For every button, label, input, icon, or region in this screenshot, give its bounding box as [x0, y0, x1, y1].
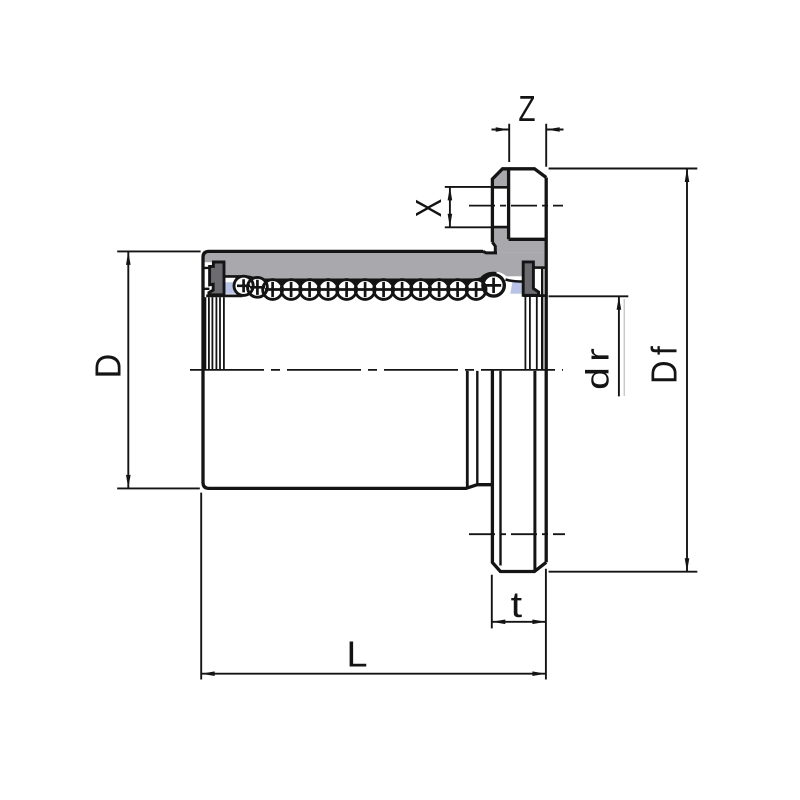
svg-text:L: L	[346, 634, 367, 674]
svg-text:Z: Z	[518, 89, 535, 129]
svg-text:Df: Df	[645, 341, 685, 384]
svg-text:D: D	[89, 354, 129, 379]
svg-text:t: t	[511, 586, 523, 626]
svg-text:X: X	[409, 199, 449, 218]
svg-text:dr: dr	[580, 343, 616, 390]
